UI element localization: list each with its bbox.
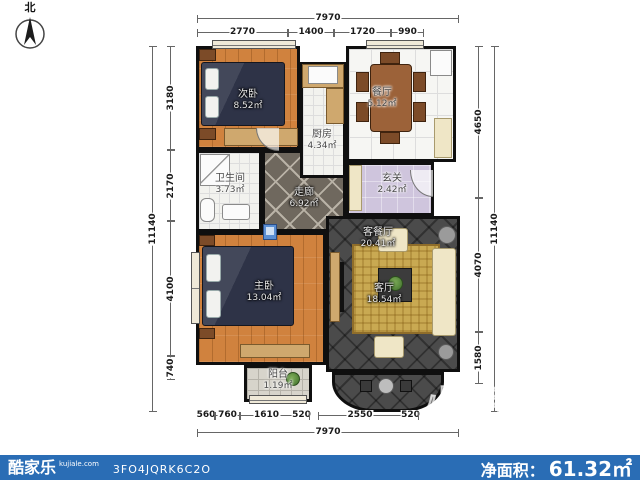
dim-top-seg4: 990	[391, 32, 424, 33]
dining-chair	[356, 102, 369, 122]
window-bedroom2-top	[212, 40, 296, 49]
dining-chair	[413, 102, 426, 122]
dim-bottom-seg5: 2550	[318, 415, 402, 416]
net-area-value: 61.32㎡	[549, 453, 632, 480]
footer-bar: 酷家乐 kujiale.com 3FO4JQRK6C2O 净面积： 61.32㎡	[0, 455, 640, 480]
bay-chair	[360, 380, 372, 392]
entry-cabinet	[349, 165, 362, 211]
balcony-plant	[286, 372, 300, 386]
toilet	[200, 198, 215, 222]
dining-chair	[380, 132, 400, 144]
dim-left-seg2: 2170	[170, 150, 171, 221]
compass-icon	[12, 13, 48, 51]
dim-top-seg3: 1720	[334, 32, 391, 33]
dim-bottom-seg2: 760	[215, 415, 240, 416]
dining-chair	[380, 52, 400, 64]
armchair-top	[378, 228, 408, 252]
dim-bottom-seg1: 560	[197, 415, 215, 416]
dim-right-seg2: 4070	[478, 198, 479, 332]
sofa	[432, 248, 456, 336]
dim-top-total: 7970	[197, 18, 459, 19]
kitchen-sink	[308, 66, 338, 84]
dim-right-seg1: 4650	[478, 46, 479, 198]
window-balcony-bottom	[249, 395, 307, 404]
pillow	[205, 96, 219, 118]
dim-bottom-seg4: 520	[293, 415, 310, 416]
net-area-label: 净面积：	[481, 457, 545, 480]
kitchen-counter-side	[326, 88, 344, 124]
dim-left-seg3: 4100	[170, 221, 171, 356]
shower	[200, 154, 230, 186]
nightstand	[199, 128, 216, 140]
round-chair	[438, 226, 456, 244]
nightstand	[199, 235, 215, 246]
pillow	[206, 290, 221, 318]
window-dining-top	[366, 40, 424, 49]
dim-top-seg1: 2770	[197, 32, 288, 33]
dining-cabinet	[434, 118, 452, 158]
compass-north-label: 北	[10, 2, 50, 13]
dim-bottom-seg6: 520	[402, 415, 419, 416]
fridge	[430, 50, 452, 76]
compass: 北	[10, 2, 50, 55]
dim-left-seg4: 740	[170, 356, 171, 380]
window-master-left	[191, 252, 200, 324]
dim-right-seg3: 1580	[478, 332, 479, 384]
net-area: 净面积： 61.32㎡	[481, 453, 632, 480]
bay-table	[378, 378, 394, 394]
watermark: 小尼宅配	[424, 374, 592, 429]
kujiale-logo: 酷家乐	[8, 460, 56, 476]
door-icon-master	[263, 224, 277, 240]
armchair-bottom	[374, 336, 404, 358]
dim-top-seg2: 1400	[288, 32, 334, 33]
master-tv-stand	[240, 344, 310, 358]
plant	[388, 276, 403, 291]
brand-site: kujiale.com	[59, 460, 99, 468]
dining-chair	[356, 72, 369, 92]
round-chair	[438, 344, 454, 360]
nightstand	[199, 49, 216, 61]
pillow	[205, 68, 219, 90]
tv-cabinet	[330, 252, 340, 322]
dim-bottom-seg3: 1610	[240, 415, 293, 416]
tv-icon	[340, 262, 344, 312]
floorplan-canvas: 北	[0, 0, 640, 480]
nightstand	[199, 328, 215, 339]
dim-left-seg1: 3180	[170, 46, 171, 150]
dining-table	[370, 64, 412, 132]
dim-left-total: 11140	[152, 46, 153, 412]
bathroom-sink	[222, 204, 250, 220]
dim-bottom-total: 7970	[197, 432, 459, 433]
dining-chair	[413, 72, 426, 92]
bay-chair	[400, 380, 412, 392]
plan-code: 3FO4JQRK6C2O	[113, 463, 211, 476]
dim-right-total: 11140	[494, 46, 495, 412]
pillow	[206, 254, 221, 282]
